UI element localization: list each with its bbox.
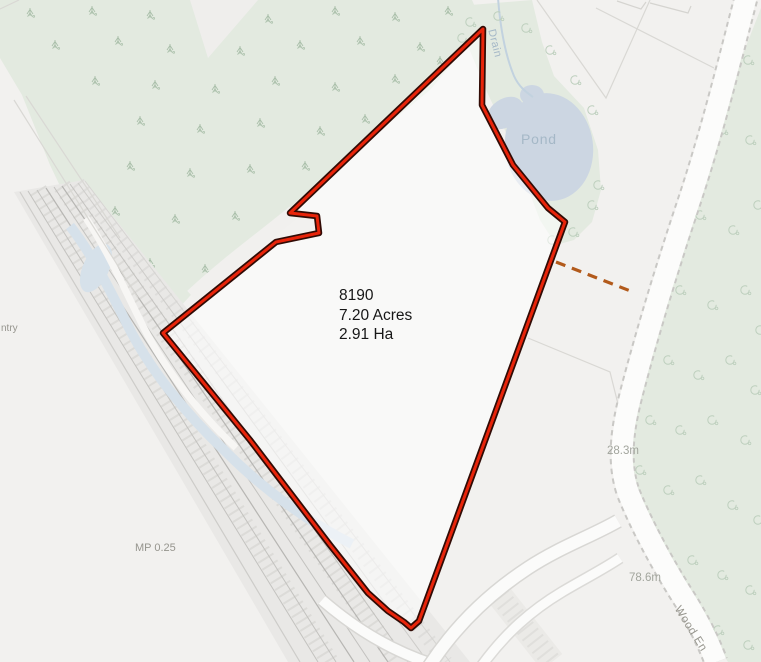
map-viewport: { "map": { "parcel": { "id": "8190", "ar… [0, 0, 761, 662]
map-canvas[interactable] [0, 0, 761, 662]
